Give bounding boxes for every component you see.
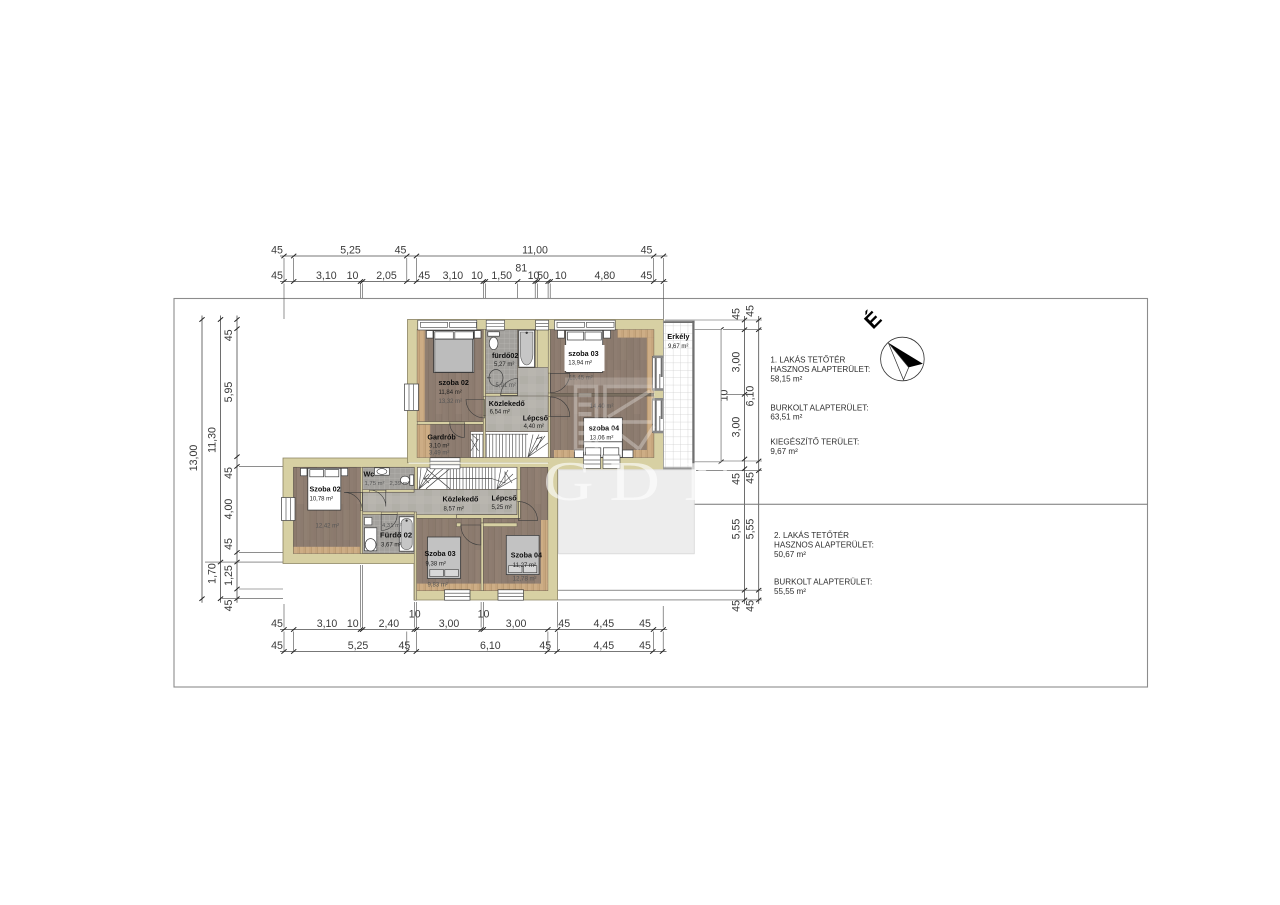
- svg-text:45: 45: [745, 600, 757, 612]
- svg-text:Közlekedő: Közlekedő: [489, 399, 526, 408]
- svg-text:5,27 m²: 5,27 m²: [494, 362, 514, 368]
- svg-text:14,40 m²: 14,40 m²: [590, 404, 614, 410]
- svg-text:4,45: 4,45: [593, 640, 614, 652]
- svg-text:9,83 m²: 9,83 m²: [428, 583, 448, 589]
- svg-text:Szoba 03: Szoba 03: [425, 549, 456, 558]
- svg-text:55,55 m²: 55,55 m²: [774, 587, 806, 596]
- svg-text:2,40: 2,40: [379, 618, 400, 630]
- svg-text:3,10 m²: 3,10 m²: [429, 444, 449, 450]
- svg-text:9,38 m²: 9,38 m²: [426, 562, 446, 568]
- svg-text:4,80: 4,80: [594, 270, 615, 282]
- svg-text:2. LAKÁS TETŐTÉR: 2. LAKÁS TETŐTÉR: [774, 531, 849, 540]
- svg-text:13,32 m²: 13,32 m²: [439, 399, 463, 405]
- svg-text:6,10: 6,10: [480, 640, 501, 652]
- svg-text:11,84 m²: 11,84 m²: [439, 390, 462, 396]
- svg-text:BURKOLT ALAPTERÜLET:: BURKOLT ALAPTERÜLET:: [774, 578, 872, 587]
- svg-text:4,45: 4,45: [593, 618, 614, 630]
- svg-text:4,00: 4,00: [223, 499, 235, 520]
- svg-text:10: 10: [347, 618, 359, 630]
- svg-text:1,75 m²: 1,75 m²: [365, 481, 385, 487]
- svg-text:13,00: 13,00: [188, 445, 200, 472]
- svg-text:10: 10: [471, 270, 483, 282]
- svg-text:10: 10: [409, 609, 421, 621]
- svg-text:45: 45: [271, 618, 283, 630]
- svg-text:9,67 m²: 9,67 m²: [770, 447, 798, 456]
- svg-text:45: 45: [271, 640, 283, 652]
- svg-text:45: 45: [639, 640, 651, 652]
- svg-text:45: 45: [641, 244, 653, 256]
- svg-text:3,10: 3,10: [316, 270, 337, 282]
- svg-text:1,70: 1,70: [207, 563, 219, 584]
- svg-text:D: D: [609, 451, 660, 513]
- svg-text:Szoba 04: Szoba 04: [511, 551, 542, 560]
- svg-text:45: 45: [223, 538, 235, 550]
- svg-text:50,67 m²: 50,67 m²: [774, 550, 806, 559]
- svg-text:BURKOLT ALAPTERÜLET:: BURKOLT ALAPTERÜLET:: [770, 403, 868, 412]
- svg-text:5,25: 5,25: [348, 640, 369, 652]
- svg-text:Gardrób: Gardrób: [427, 433, 456, 442]
- svg-text:3,00: 3,00: [731, 352, 743, 373]
- svg-text:1. LAKÁS TETŐTÉR: 1. LAKÁS TETŐTÉR: [770, 356, 845, 365]
- svg-text:3,49 m²: 3,49 m²: [429, 451, 449, 457]
- svg-text:45: 45: [558, 618, 570, 630]
- svg-text:63,51 m²: 63,51 m²: [770, 413, 802, 422]
- svg-text:45: 45: [271, 244, 283, 256]
- svg-text:KIEGÉSZÍTŐ TERÜLET:: KIEGÉSZÍTŐ TERÜLET:: [770, 438, 859, 447]
- svg-text:Erkély: Erkély: [667, 332, 690, 341]
- svg-text:Közlekedő: Közlekedő: [443, 495, 480, 504]
- svg-text:11,30: 11,30: [207, 427, 219, 453]
- svg-text:3,10: 3,10: [443, 270, 464, 282]
- svg-text:45: 45: [641, 270, 653, 282]
- svg-text:Lépcső: Lépcső: [492, 494, 518, 503]
- svg-text:Fürdő 02: Fürdő 02: [380, 531, 412, 540]
- svg-text:2,39 m²: 2,39 m²: [390, 481, 410, 487]
- svg-text:3,00: 3,00: [439, 618, 460, 630]
- svg-text:11,27 m²: 11,27 m²: [513, 563, 536, 569]
- svg-text:Wc: Wc: [364, 470, 375, 479]
- svg-text:5,55: 5,55: [745, 519, 757, 540]
- svg-text:45: 45: [418, 270, 430, 282]
- svg-text:2,05: 2,05: [376, 270, 397, 282]
- svg-text:5,55: 5,55: [731, 519, 743, 540]
- svg-text:G: G: [543, 451, 594, 513]
- svg-text:13,06 m²: 13,06 m²: [590, 435, 614, 441]
- svg-text:45: 45: [731, 600, 743, 612]
- svg-text:8,57 m²: 8,57 m²: [444, 507, 464, 513]
- svg-text:3,67 m²: 3,67 m²: [381, 543, 401, 549]
- svg-text:45: 45: [399, 640, 411, 652]
- svg-text:45: 45: [223, 600, 235, 612]
- svg-text:13,94 m²: 13,94 m²: [568, 361, 592, 367]
- svg-text:45: 45: [395, 244, 407, 256]
- svg-text:45: 45: [223, 329, 235, 341]
- svg-text:5,91 m²: 5,91 m²: [496, 383, 516, 389]
- svg-text:5,95: 5,95: [223, 382, 235, 403]
- svg-text:6,54 m²: 6,54 m²: [490, 410, 510, 416]
- svg-text:HASZNOS ALAPTERÜLET:: HASZNOS ALAPTERÜLET:: [774, 540, 874, 549]
- svg-text:6,10: 6,10: [745, 386, 757, 407]
- svg-text:10,78 m²: 10,78 m²: [310, 497, 334, 503]
- svg-text:12,78 m²: 12,78 m²: [513, 577, 537, 583]
- svg-text:4,40 m²: 4,40 m²: [524, 424, 544, 430]
- svg-text:45: 45: [539, 640, 551, 652]
- svg-text:É: É: [860, 307, 886, 333]
- svg-text:50: 50: [537, 270, 549, 282]
- svg-text:Lépcső: Lépcső: [523, 413, 549, 422]
- svg-text:45: 45: [731, 308, 743, 320]
- svg-text:58,15 m²: 58,15 m²: [770, 374, 802, 383]
- svg-text:szoba 02: szoba 02: [439, 378, 469, 387]
- svg-text:81: 81: [515, 263, 527, 275]
- svg-text:5,25: 5,25: [340, 244, 361, 256]
- svg-text:3,00: 3,00: [506, 618, 527, 630]
- svg-text:3,10: 3,10: [317, 618, 338, 630]
- svg-text:1,25: 1,25: [223, 565, 235, 586]
- svg-text:szoba 03: szoba 03: [568, 349, 598, 358]
- svg-text:3,00: 3,00: [731, 417, 743, 438]
- svg-text:1,50: 1,50: [491, 270, 512, 282]
- svg-text:N: N: [684, 451, 735, 513]
- svg-text:10: 10: [555, 270, 567, 282]
- svg-text:45: 45: [745, 472, 757, 484]
- svg-text:HASZNOS ALAPTERÜLET:: HASZNOS ALAPTERÜLET:: [770, 365, 870, 374]
- svg-text:12,42 m²: 12,42 m²: [316, 524, 340, 530]
- svg-text:Szoba 02: Szoba 02: [310, 485, 341, 494]
- svg-text:5,25 m²: 5,25 m²: [492, 505, 512, 511]
- svg-text:fürdő02: fürdő02: [492, 351, 518, 360]
- svg-text:10: 10: [347, 270, 359, 282]
- svg-text:45: 45: [639, 618, 651, 630]
- svg-text:45: 45: [271, 270, 283, 282]
- svg-text:45: 45: [223, 467, 235, 479]
- svg-text:11,00: 11,00: [522, 244, 548, 256]
- svg-text:9,67 m²: 9,67 m²: [668, 344, 688, 350]
- svg-text:45: 45: [745, 305, 757, 317]
